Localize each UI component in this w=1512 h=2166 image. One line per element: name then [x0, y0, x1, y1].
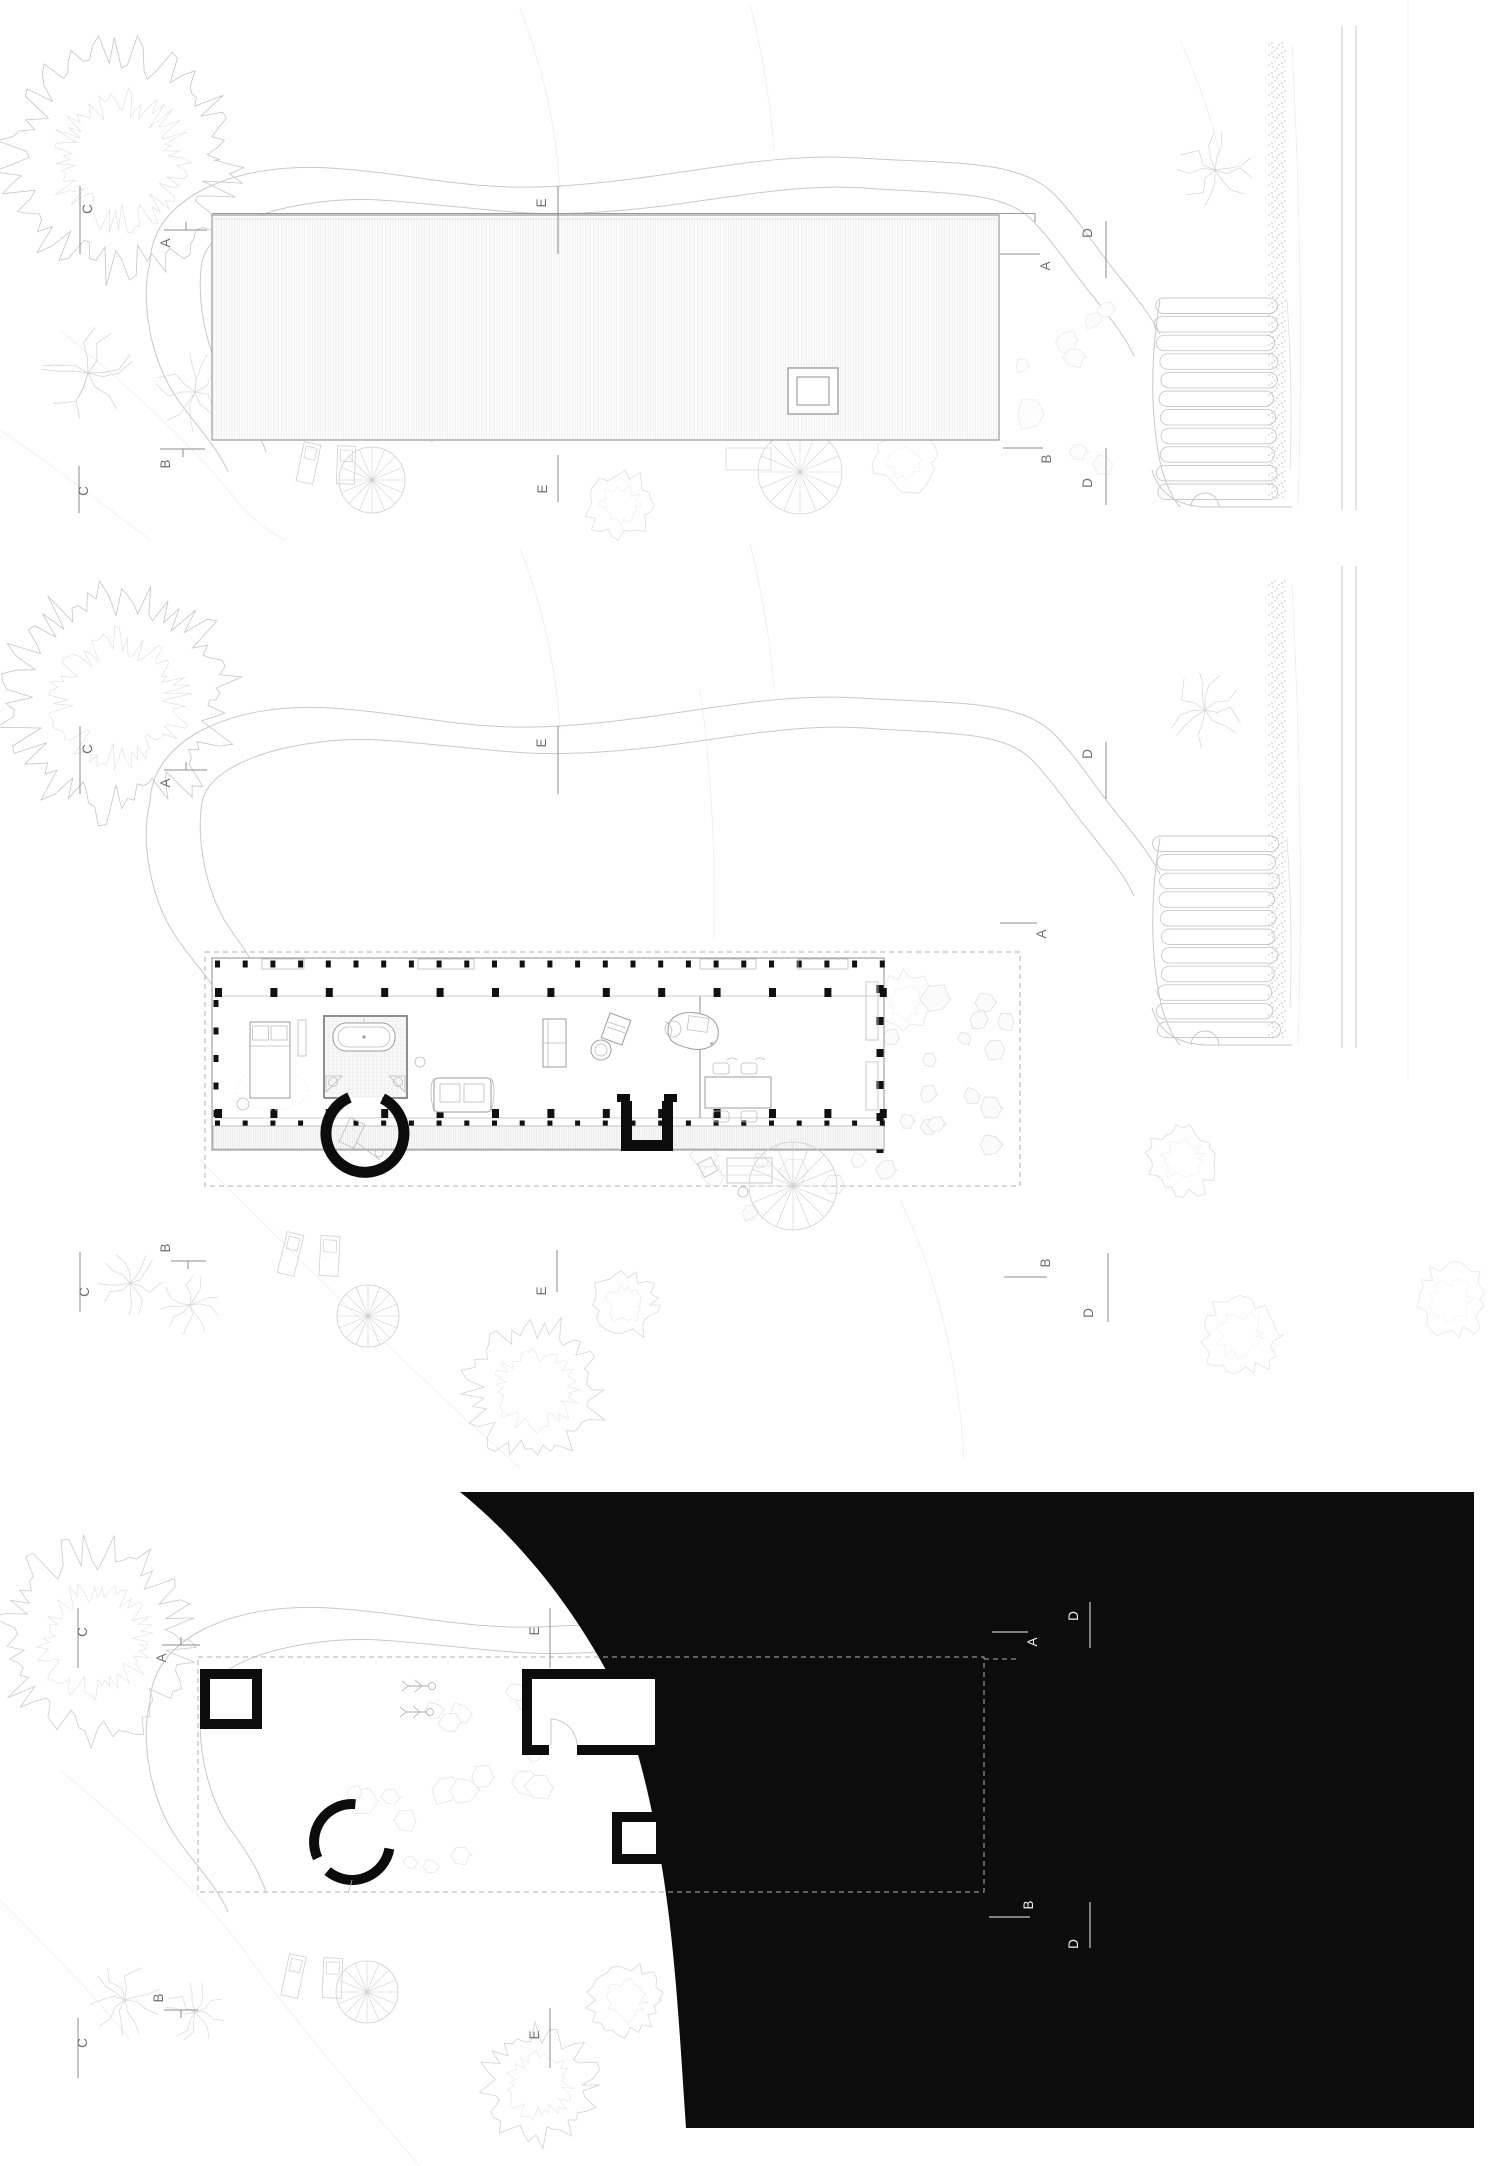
stool — [738, 1187, 748, 1197]
lounge-chair — [281, 1954, 306, 1999]
site-path-lines — [146, 1607, 648, 1912]
svg-text:B: B — [1021, 1900, 1036, 1909]
section-marker-d-right-top: D — [1080, 221, 1106, 278]
svg-text:E: E — [534, 738, 549, 747]
section-marker-c-top: C — [75, 1608, 90, 1668]
yard-furniture — [277, 1232, 399, 1347]
deck — [213, 1126, 884, 1149]
svg-text:D: D — [1066, 1939, 1081, 1949]
earth-poche — [460, 1492, 1474, 2128]
svg-text:D: D — [1080, 228, 1095, 238]
section-marker-a-left: A — [154, 1637, 200, 1663]
svg-text:E: E — [534, 198, 549, 207]
svg-text:A: A — [158, 778, 173, 787]
svg-text:D: D — [1080, 749, 1095, 759]
bathroom — [324, 1016, 407, 1098]
bathtub-drain — [362, 1035, 365, 1038]
ottoman — [591, 1040, 611, 1060]
svg-text:A: A — [1034, 929, 1049, 938]
section-marker-c-bottom: C — [77, 1252, 92, 1312]
svg-text:C: C — [77, 1287, 92, 1297]
svg-text:A: A — [1025, 1637, 1040, 1646]
section-marker-a-right: A — [1000, 923, 1049, 939]
gravel-strip — [1268, 580, 1286, 1038]
section-marker-c-bottom: C — [76, 466, 91, 513]
road-lines — [1342, 26, 1356, 510]
gravel-strip — [1268, 42, 1286, 500]
person-figure — [402, 1680, 436, 1692]
roof-plan-panel: C A E B C E A D — [0, 0, 1408, 540]
svg-text:E: E — [527, 2030, 542, 2039]
svg-text:D: D — [1081, 1308, 1096, 1318]
svg-text:D: D — [1066, 1611, 1081, 1621]
lounge-chair — [319, 1236, 340, 1277]
circular-stair-base — [314, 1804, 389, 1893]
section-marker-e-top: E — [527, 1608, 550, 1668]
basement-plan-panel: C A E B C E A D — [0, 1492, 1474, 2166]
svg-text:B: B — [1039, 454, 1054, 463]
svg-text:A: A — [154, 1653, 169, 1662]
section-marker-c-top: C — [80, 726, 95, 794]
section-marker-c-bottom: C — [75, 2018, 90, 2078]
svg-text:B: B — [151, 1993, 166, 2002]
dining-table — [705, 1077, 771, 1108]
section-marker-b-left: B — [158, 449, 205, 469]
loveseat — [431, 1078, 494, 1112]
basement-room-small — [612, 1812, 666, 1864]
section-marker-e-top: E — [534, 726, 558, 794]
section-marker-c-top: C — [80, 186, 95, 254]
svg-text:C: C — [76, 486, 91, 496]
section-marker-e-bottom: E — [527, 2008, 550, 2068]
basement-room-large — [522, 1669, 665, 1755]
svg-text:B: B — [1038, 1258, 1053, 1267]
svg-text:A: A — [1038, 261, 1053, 270]
roof — [212, 214, 1035, 441]
section-marker-a-left: A — [158, 762, 207, 788]
section-marker-e-bottom: E — [535, 455, 558, 502]
section-marker-b-right: B — [1003, 448, 1054, 464]
road-lines — [1342, 566, 1356, 1048]
section-marker-e-bottom: E — [534, 1250, 557, 1296]
svg-text:B: B — [158, 459, 173, 468]
section-marker-b-left: B — [151, 1993, 198, 2018]
section-marker-d-right-bottom: D — [1081, 1253, 1108, 1322]
yard-furniture — [296, 430, 842, 514]
svg-text:C: C — [75, 2038, 90, 2048]
lounge-chair — [277, 1232, 304, 1277]
door-opening — [549, 1745, 577, 1755]
svg-text:D: D — [1080, 478, 1095, 488]
svg-text:C: C — [80, 744, 95, 754]
floor-plan-panel: C A E B C E A D — [0, 540, 1484, 1468]
roof-outline — [212, 215, 999, 440]
svg-text:A: A — [158, 238, 173, 247]
bed — [250, 1022, 290, 1098]
section-marker-b-right: B — [1004, 1258, 1053, 1277]
svg-text:E: E — [535, 484, 550, 493]
house-floor-plan — [212, 958, 887, 1172]
svg-text:C: C — [75, 1627, 90, 1637]
svg-text:B: B — [158, 1243, 173, 1252]
skylight-glass — [797, 377, 829, 405]
architectural-plan-sheet: C A E B C E A D — [0, 0, 1512, 2166]
section-marker-a-right: A — [1000, 254, 1053, 271]
svg-text:E: E — [534, 1286, 549, 1295]
section-letter: C — [80, 204, 95, 214]
section-marker-a-left: A — [158, 222, 207, 248]
svg-text:E: E — [527, 1626, 542, 1635]
trees-group — [0, 1535, 663, 2149]
cellar-room-square — [200, 1669, 262, 1729]
plan-drawing: C A E B C E A D — [0, 0, 1512, 2166]
section-marker-b-left: B — [158, 1243, 206, 1269]
lounge-chair — [296, 442, 321, 485]
